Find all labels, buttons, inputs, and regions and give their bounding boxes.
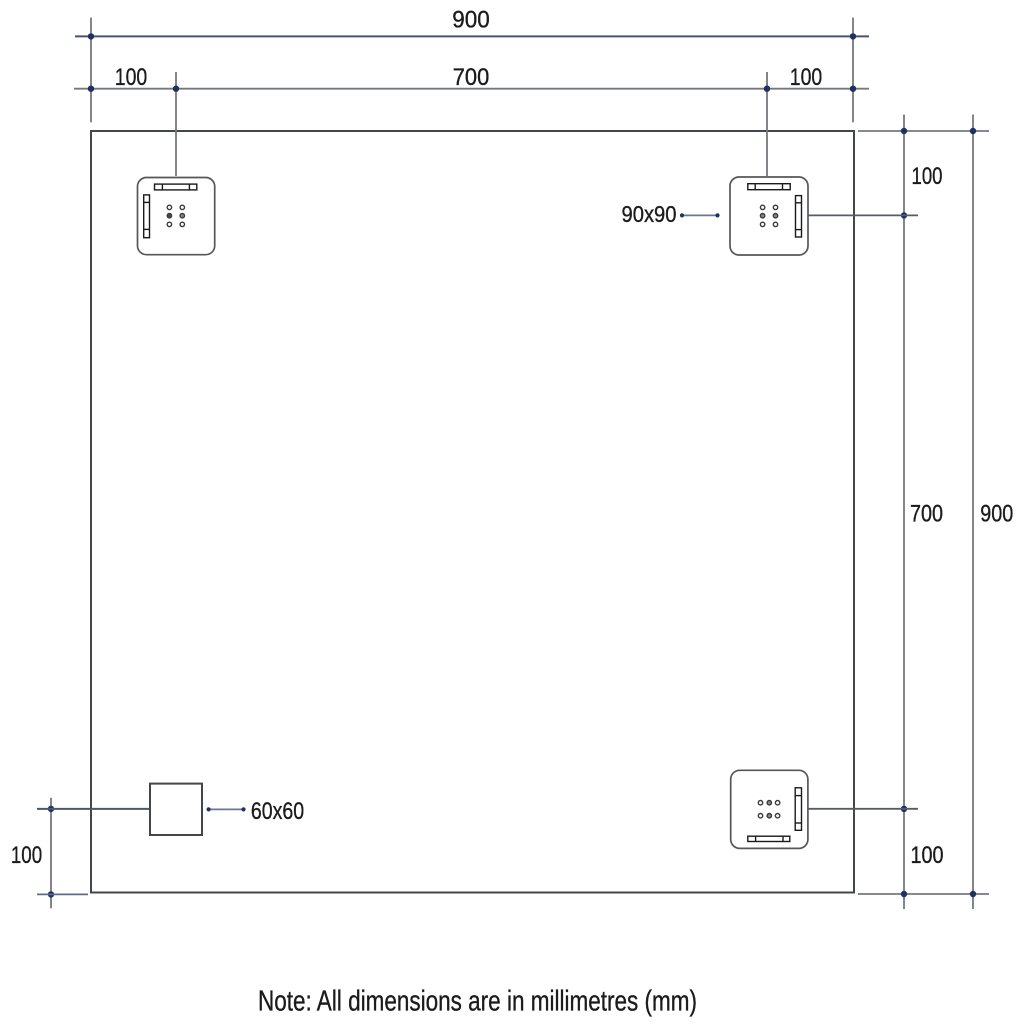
svg-text:700: 700 (910, 501, 943, 528)
svg-text:Note: All dimensions are in mi: Note: All dimensions are in millimetres … (258, 986, 697, 1018)
svg-text:900: 900 (452, 7, 490, 34)
svg-text:100: 100 (11, 842, 42, 869)
svg-text:60x60: 60x60 (251, 798, 304, 825)
svg-text:100: 100 (115, 64, 147, 91)
svg-text:100: 100 (911, 842, 944, 869)
svg-text:100: 100 (790, 64, 822, 91)
svg-text:90x90: 90x90 (622, 201, 677, 227)
svg-text:900: 900 (980, 501, 1013, 528)
svg-text:100: 100 (912, 163, 943, 190)
svg-text:700: 700 (453, 64, 490, 91)
